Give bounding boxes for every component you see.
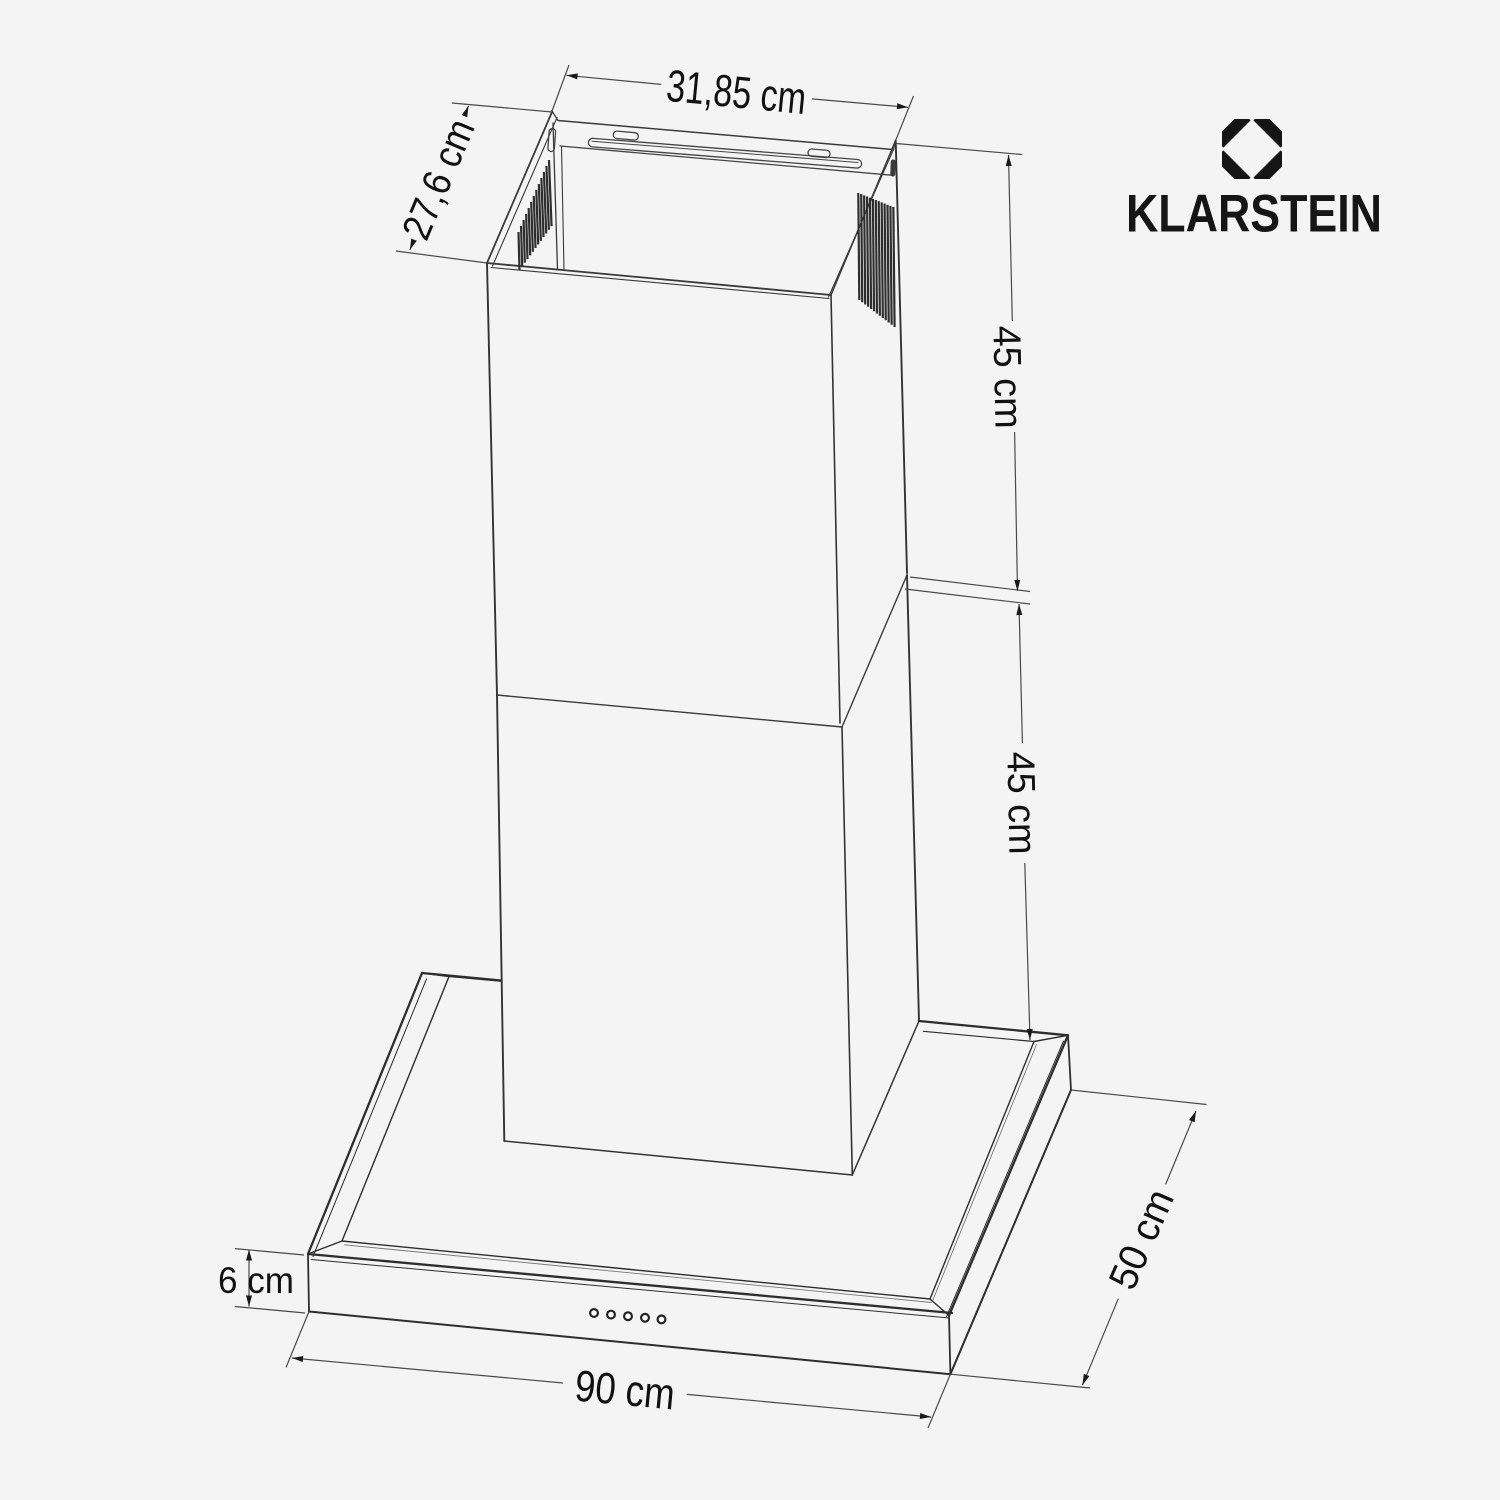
svg-text:6 cm: 6 cm [218,1260,294,1301]
svg-text:KLARSTEIN: KLARSTEIN [1126,185,1382,244]
svg-text:45 cm: 45 cm [984,325,1029,429]
svg-text:90 cm: 90 cm [573,1361,677,1419]
svg-text:45 cm: 45 cm [998,751,1043,855]
